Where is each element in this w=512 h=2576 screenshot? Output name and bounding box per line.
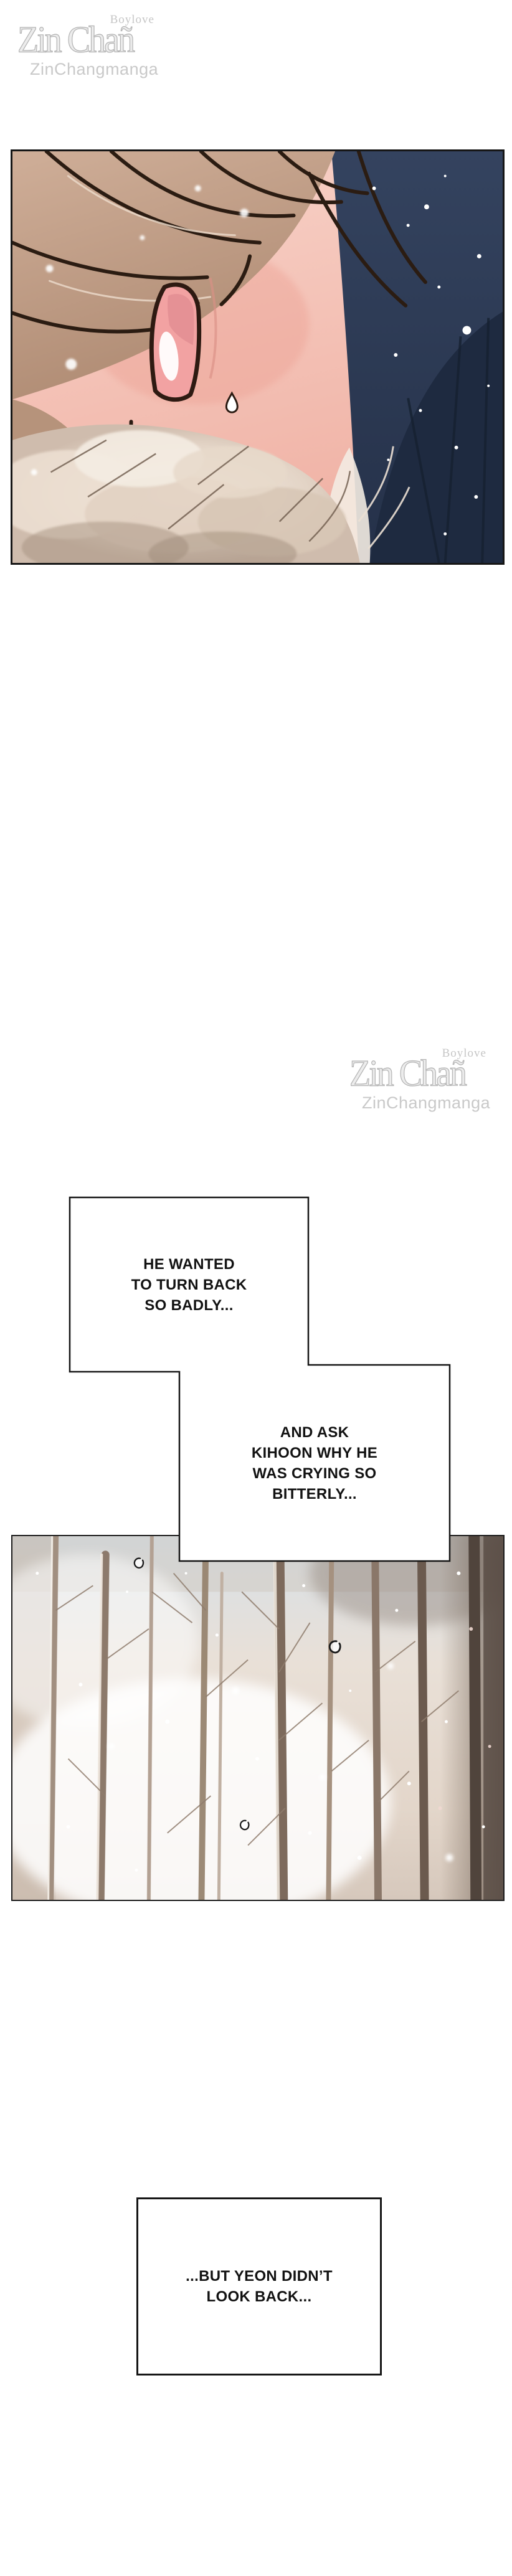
watermark-brand: Zin Chañ: [17, 21, 133, 59]
watermark-brand: Zin Chañ: [349, 1055, 465, 1092]
narration-line: ...BUT YEON DIDN’T: [186, 2266, 333, 2286]
narration-line: TO TURN BACK: [131, 1275, 247, 1295]
watermark-tagline: Boylove: [110, 14, 154, 26]
crying-mouth: [151, 285, 199, 400]
comic-panel-snowy-forest: [11, 1535, 505, 1901]
comic-panel-crying-closeup: [11, 149, 505, 565]
panel-1-artwork: [12, 151, 503, 563]
narration-line: LOOK BACK...: [207, 2286, 312, 2307]
narration-line: BITTERLY...: [272, 1484, 357, 1504]
narration-box-3: ...BUT YEON DIDN’T LOOK BACK...: [136, 2197, 382, 2375]
watermark-handle: ZinChangmanga: [362, 1095, 490, 1111]
narration-box-2: AND ASK KIHOON WHY HE WAS CRYING SO BITT…: [179, 1365, 450, 1561]
watermark-tagline: Boylove: [442, 1047, 486, 1059]
panel-2-artwork: [12, 1536, 503, 1900]
webtoon-page: Boylove Zin Chañ ZinChangmanga: [0, 0, 512, 2576]
narration-line: HE WANTED: [143, 1254, 235, 1275]
narration-line: AND ASK: [280, 1422, 349, 1443]
narration-line: KIHOON WHY HE: [252, 1443, 377, 1463]
watermark-middle: Boylove Zin Chañ ZinChangmanga: [349, 1046, 484, 1115]
watermark-top: Boylove Zin Chañ ZinChangmanga: [17, 12, 152, 81]
narration-box-1: HE WANTED TO TURN BACK SO BADLY...: [70, 1197, 308, 1372]
narration-line: SO BADLY...: [145, 1295, 233, 1316]
narration-line: WAS CRYING SO: [252, 1463, 376, 1484]
watermark-handle: ZinChangmanga: [30, 61, 158, 78]
